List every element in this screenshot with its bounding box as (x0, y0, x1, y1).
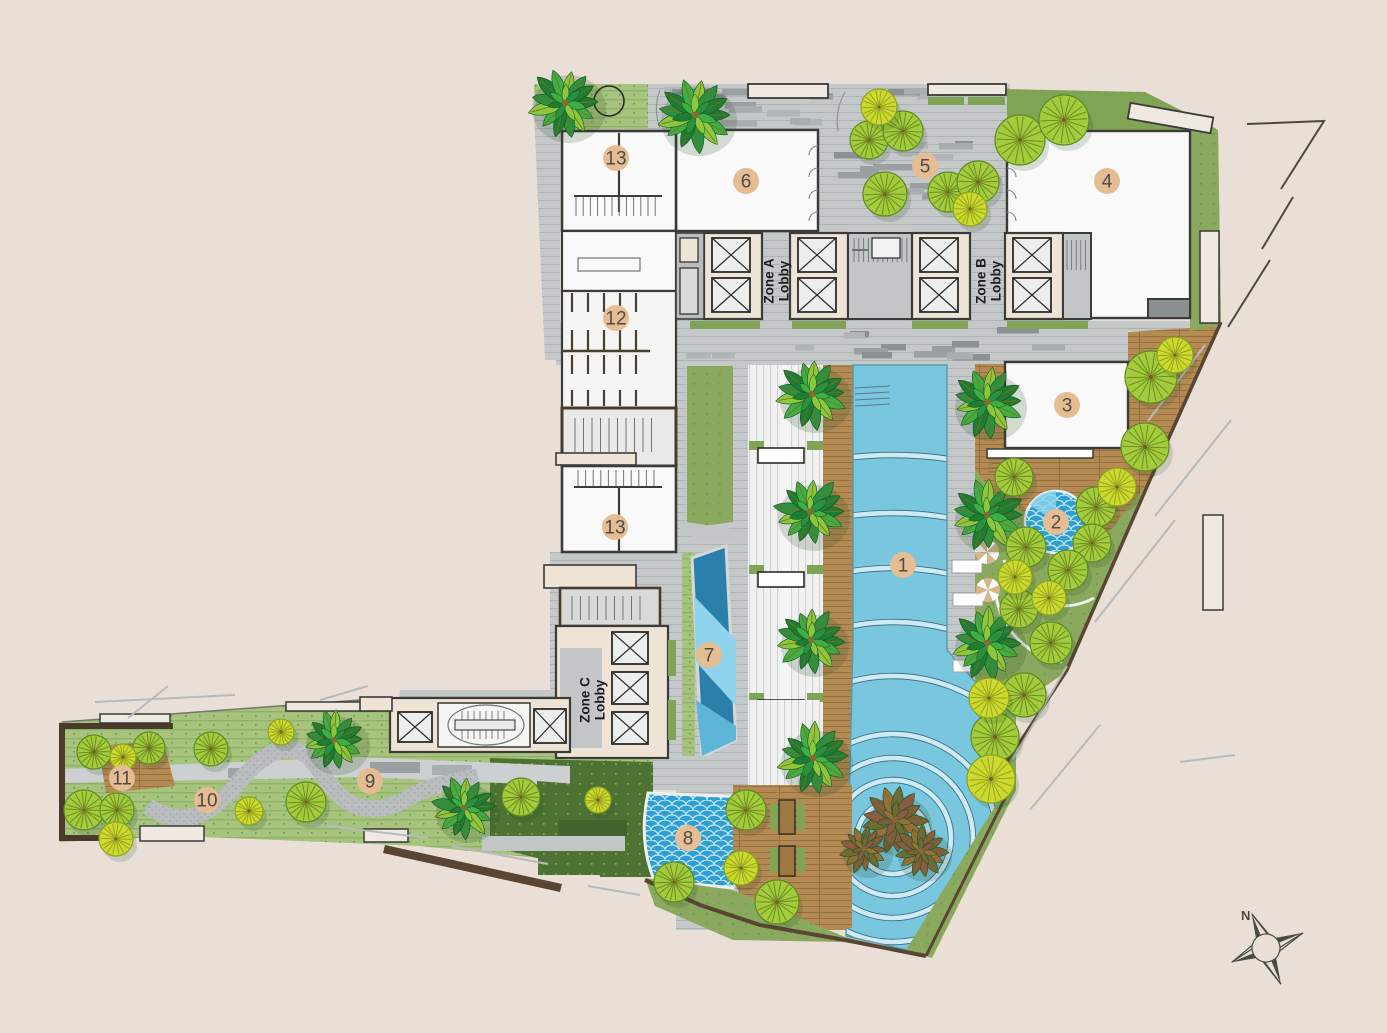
svg-text:10: 10 (196, 791, 217, 812)
svg-text:1: 1 (898, 556, 909, 577)
svg-text:11: 11 (112, 769, 132, 790)
svg-text:7: 7 (704, 646, 715, 667)
svg-text:N: N (1241, 908, 1250, 923)
svg-text:6: 6 (741, 172, 752, 193)
svg-text:5: 5 (920, 157, 931, 178)
svg-text:13: 13 (605, 149, 626, 170)
svg-text:13: 13 (604, 518, 625, 539)
svg-text:2: 2 (1051, 513, 1062, 534)
svg-text:Lobby: Lobby (777, 260, 792, 301)
svg-text:Lobby: Lobby (593, 679, 608, 720)
svg-text:Lobby: Lobby (989, 260, 1004, 301)
svg-text:8: 8 (683, 829, 694, 850)
svg-text:3: 3 (1062, 396, 1073, 417)
svg-text:4: 4 (1102, 172, 1113, 193)
svg-text:Zone A: Zone A (762, 258, 777, 303)
svg-text:Zone B: Zone B (974, 258, 989, 304)
svg-text:9: 9 (365, 772, 376, 793)
svg-text:Zone C: Zone C (578, 677, 593, 723)
svg-text:12: 12 (605, 309, 626, 330)
